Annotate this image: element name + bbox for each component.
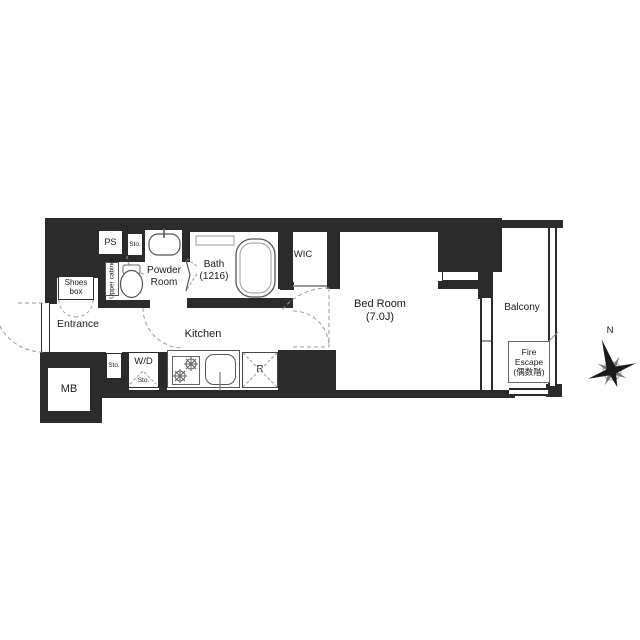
hall-door-arc — [293, 311, 329, 347]
bath-folding-door — [186, 260, 190, 291]
bath-shelf-icon — [196, 236, 234, 245]
shoes-box-door-arc-right — [76, 300, 93, 317]
refrigerator-cross — [243, 353, 277, 387]
floor-plan: PS Sto. Shoes box MB Upper cabinet Sto. … — [0, 0, 640, 640]
compass-icon — [578, 332, 640, 400]
burner-icon-1 — [184, 357, 198, 371]
shoes-box-door-arc-left — [59, 300, 76, 317]
burner-icon-2 — [173, 369, 187, 383]
toilet-icon — [121, 271, 143, 298]
entrance-door-arc — [0, 303, 43, 352]
powder-door-arc — [143, 308, 183, 348]
fire-escape-leader — [549, 332, 558, 341]
wd-storage-marks — [130, 371, 156, 384]
bath-leader-line-1 — [187, 259, 197, 266]
bedroom-door-arc — [282, 288, 329, 310]
